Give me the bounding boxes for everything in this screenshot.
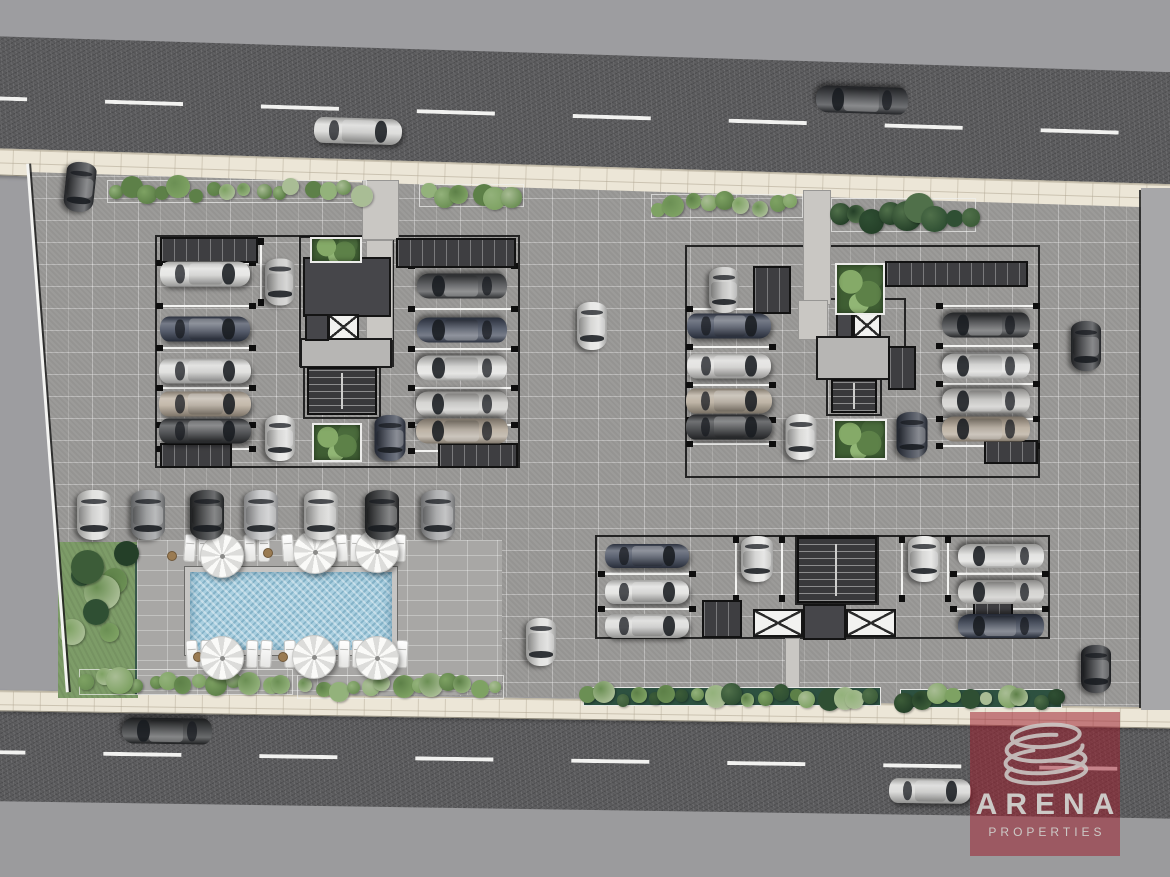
- car: [62, 161, 97, 214]
- brand-watermark: ARENA PROPERTIES: [970, 712, 1120, 856]
- brand-spiral-icon: [975, 718, 1115, 790]
- car-rear-window: [1005, 392, 1015, 411]
- car-rear-window: [379, 423, 402, 428]
- core-planter: [310, 237, 362, 263]
- car-rear-window: [1075, 330, 1097, 336]
- car-windshield: [193, 525, 221, 532]
- bush: [758, 691, 772, 705]
- bush: [238, 672, 261, 695]
- car-roof: [367, 506, 396, 525]
- car-roof: [968, 355, 1001, 377]
- car-rear-window: [81, 499, 106, 505]
- car: [160, 317, 250, 342]
- car-roof: [149, 720, 184, 743]
- car-rear-window: [619, 583, 628, 601]
- bush: [114, 541, 139, 566]
- bush: [298, 678, 312, 692]
- bush: [752, 201, 768, 217]
- car-roof: [714, 315, 746, 337]
- bush: [686, 193, 701, 208]
- car: [314, 117, 403, 146]
- bush: [961, 689, 980, 708]
- bush: [137, 185, 157, 205]
- car-windshield: [973, 546, 985, 566]
- car-rear-window: [369, 499, 394, 505]
- bush: [773, 684, 790, 701]
- storage-rooms: [888, 346, 916, 390]
- car: [577, 302, 607, 350]
- car-roof: [444, 420, 479, 442]
- car: [244, 490, 278, 540]
- car-rear-window: [175, 265, 185, 284]
- car-roof: [79, 506, 108, 525]
- staircase: [831, 379, 877, 413]
- car: [375, 415, 406, 461]
- bush: [1034, 695, 1049, 710]
- car-rear-window: [713, 275, 735, 280]
- car: [897, 412, 928, 458]
- parasol: [355, 636, 399, 680]
- side-table: [278, 652, 288, 662]
- car: [421, 490, 455, 540]
- car-roof: [267, 430, 293, 447]
- car-rear-window: [194, 499, 219, 505]
- car-rear-window: [790, 422, 813, 427]
- storage-rooms: [396, 238, 516, 268]
- car-roof: [711, 282, 737, 299]
- bush: [78, 674, 94, 690]
- car-windshield: [957, 356, 969, 377]
- bush: [166, 175, 189, 198]
- car: [417, 274, 507, 299]
- car-rear-window: [619, 617, 628, 635]
- car-windshield: [222, 319, 235, 340]
- car-windshield: [663, 582, 675, 602]
- car-windshield: [1084, 678, 1109, 685]
- car-windshield: [80, 525, 108, 532]
- car: [786, 414, 817, 460]
- car: [942, 417, 1030, 442]
- bush: [921, 206, 948, 233]
- car: [159, 359, 251, 384]
- bush: [715, 191, 734, 210]
- car-windshield: [223, 394, 236, 415]
- bush: [1010, 688, 1028, 706]
- car-roof: [189, 263, 223, 285]
- car: [526, 618, 556, 666]
- car-roof: [306, 506, 335, 525]
- car: [190, 490, 224, 540]
- bush: [894, 693, 913, 712]
- bush: [174, 676, 191, 693]
- car-windshield: [973, 582, 985, 602]
- staircase: [307, 367, 377, 415]
- bush: [593, 681, 615, 703]
- car: [160, 262, 250, 287]
- road-top-center-line: [0, 96, 1170, 139]
- service-shaft: [305, 314, 329, 341]
- car-roof: [528, 633, 554, 651]
- car-roof: [984, 546, 1017, 567]
- sun-lounger: [259, 640, 273, 669]
- elevator: [753, 609, 803, 637]
- car: [686, 389, 772, 414]
- car-rear-window: [175, 395, 185, 414]
- car: [417, 356, 507, 381]
- car-windshield: [432, 320, 445, 341]
- bush: [489, 681, 501, 693]
- car: [686, 415, 772, 440]
- car-roof: [444, 319, 478, 341]
- car-windshield: [1074, 356, 1099, 363]
- car: [816, 85, 909, 115]
- bush: [980, 692, 992, 704]
- car-windshield: [745, 417, 757, 438]
- car-rear-window: [187, 722, 197, 741]
- bush: [257, 184, 272, 199]
- core-planter: [835, 263, 885, 315]
- service-shaft: [803, 604, 846, 640]
- car-windshield: [957, 315, 969, 336]
- car-rear-window: [482, 277, 492, 296]
- bush: [1048, 689, 1065, 706]
- car-rear-window: [701, 392, 710, 411]
- bush: [329, 682, 348, 701]
- car-windshield: [580, 335, 605, 342]
- bush: [219, 184, 235, 200]
- car-rear-window: [1005, 316, 1015, 335]
- core-planter: [312, 423, 362, 462]
- car: [942, 313, 1030, 338]
- car: [709, 267, 739, 313]
- car-roof: [714, 390, 747, 412]
- car: [131, 490, 165, 540]
- bush: [962, 208, 980, 226]
- car-roof: [968, 390, 1001, 412]
- car-windshield: [957, 419, 969, 440]
- side-table: [263, 548, 273, 558]
- car-windshield: [745, 391, 757, 412]
- car: [958, 614, 1044, 638]
- car-roof: [246, 506, 275, 525]
- car-rear-window: [701, 317, 710, 336]
- car-roof: [133, 506, 162, 525]
- car-windshield: [663, 616, 675, 636]
- bush: [945, 688, 961, 704]
- car: [265, 259, 295, 306]
- car-windshield: [529, 651, 554, 658]
- elevator: [853, 313, 881, 338]
- bush: [449, 185, 468, 204]
- staircase: [797, 537, 877, 603]
- car-roof: [66, 177, 94, 199]
- car-windshield: [247, 525, 275, 532]
- car: [304, 490, 338, 540]
- car-windshield: [424, 525, 452, 532]
- parasol: [200, 636, 244, 680]
- bush: [501, 187, 521, 207]
- storage-rooms: [984, 440, 1038, 464]
- car-roof: [444, 275, 478, 297]
- car: [605, 544, 689, 568]
- outside-east: [1141, 188, 1170, 710]
- car-roof: [743, 551, 771, 568]
- car-windshield: [137, 720, 150, 742]
- car-roof: [632, 616, 664, 637]
- car: [77, 490, 111, 540]
- car-windshield: [432, 358, 445, 379]
- storage-rooms: [160, 443, 232, 468]
- car-roof: [188, 393, 223, 415]
- car: [416, 392, 508, 417]
- storage-rooms: [160, 237, 258, 263]
- bush: [71, 550, 104, 583]
- car-rear-window: [901, 420, 924, 425]
- bush: [798, 691, 815, 708]
- car-roof: [984, 582, 1017, 603]
- car-windshield: [134, 525, 162, 532]
- bush: [617, 694, 629, 706]
- car: [605, 614, 689, 638]
- car-roof: [632, 546, 664, 567]
- boundary-east: [1139, 190, 1141, 708]
- car: [417, 318, 507, 343]
- car-roof: [714, 416, 747, 438]
- car: [1071, 321, 1101, 371]
- car: [889, 778, 971, 804]
- car-windshield: [268, 291, 293, 298]
- parasol: [292, 635, 336, 679]
- car-rear-window: [1005, 420, 1015, 439]
- car: [958, 544, 1044, 568]
- car-windshield: [945, 781, 957, 802]
- car-rear-window: [903, 781, 912, 800]
- car-roof: [899, 427, 926, 444]
- bush: [721, 683, 742, 704]
- car-windshield: [222, 264, 235, 285]
- core-lobby: [300, 338, 392, 368]
- car-roof: [188, 360, 223, 382]
- bush: [657, 685, 675, 703]
- storage-rooms: [753, 266, 791, 314]
- car: [159, 392, 251, 417]
- car-rear-window: [329, 120, 339, 140]
- car-roof: [915, 780, 946, 802]
- car: [159, 419, 251, 444]
- car-rear-window: [701, 418, 710, 437]
- car-rear-window: [248, 499, 273, 505]
- car-windshield: [957, 391, 969, 412]
- car-roof: [788, 429, 815, 446]
- side-table: [167, 551, 177, 561]
- entrance-walkway: [798, 300, 828, 340]
- car-rear-window: [425, 499, 450, 505]
- car: [605, 580, 689, 604]
- car-rear-window: [135, 499, 160, 505]
- car-roof: [1073, 337, 1099, 356]
- entrance-walkway: [803, 190, 831, 305]
- car-roof: [192, 506, 221, 525]
- car-roof: [423, 506, 452, 525]
- storage-rooms: [702, 600, 742, 638]
- car-windshield: [432, 276, 445, 297]
- car-roof: [188, 420, 223, 442]
- car-roof: [267, 274, 293, 292]
- car-windshield: [973, 616, 985, 636]
- car-rear-window: [745, 544, 769, 549]
- car: [416, 419, 508, 444]
- bush: [320, 182, 337, 199]
- car-roof: [377, 430, 404, 447]
- bush: [741, 693, 754, 706]
- bush: [351, 185, 373, 207]
- car: [908, 536, 940, 582]
- car-roof: [910, 551, 938, 568]
- car: [1081, 645, 1111, 693]
- car-rear-window: [482, 359, 492, 378]
- bush: [675, 689, 688, 702]
- car: [958, 580, 1044, 604]
- car-windshield: [307, 525, 335, 532]
- car-rear-window: [269, 423, 291, 428]
- car-roof: [984, 616, 1017, 637]
- car-roof: [968, 418, 1001, 440]
- car-windshield: [663, 546, 675, 566]
- car-roof: [1083, 660, 1109, 678]
- car-rear-window: [1005, 357, 1015, 376]
- car-rear-window: [308, 499, 333, 505]
- car-windshield: [223, 421, 236, 442]
- car-roof: [968, 314, 1001, 336]
- sun-lounger: [245, 640, 258, 668]
- car-roof: [714, 355, 746, 377]
- core-planter: [833, 419, 887, 460]
- car-rear-window: [619, 547, 628, 565]
- car-windshield: [745, 356, 757, 377]
- car-rear-window: [175, 422, 185, 441]
- bush: [282, 178, 299, 195]
- core-lobby: [816, 336, 890, 380]
- car: [942, 389, 1030, 414]
- car-rear-window: [701, 357, 710, 376]
- car-rear-window: [482, 321, 492, 340]
- brand-name: ARENA: [968, 790, 1123, 820]
- storage-rooms: [438, 443, 518, 468]
- car: [942, 354, 1030, 379]
- bush: [471, 680, 489, 698]
- car: [687, 314, 771, 339]
- elevator: [328, 314, 359, 340]
- car-roof: [444, 393, 479, 415]
- car-roof: [843, 88, 879, 112]
- car-rear-window: [175, 320, 185, 339]
- car: [265, 415, 295, 461]
- service-shaft: [303, 257, 391, 317]
- car: [365, 490, 399, 540]
- car-windshield: [223, 361, 236, 382]
- car-roof: [189, 318, 223, 340]
- car-windshield: [368, 525, 396, 532]
- car: [122, 717, 212, 744]
- car-rear-window: [912, 544, 936, 549]
- car-windshield: [745, 316, 757, 337]
- car-roof: [579, 317, 605, 335]
- car-roof: [342, 119, 376, 142]
- brand-subtitle: PROPERTIES: [984, 826, 1105, 838]
- car: [687, 354, 771, 379]
- car-roof: [444, 357, 478, 379]
- parasol: [200, 534, 244, 578]
- elevator: [846, 609, 896, 637]
- storage-rooms: [885, 261, 1028, 287]
- bush: [631, 687, 647, 703]
- car: [741, 536, 773, 582]
- site-plan-render: ARENA PROPERTIES: [0, 0, 1170, 877]
- bush: [946, 210, 963, 227]
- service-shaft: [836, 313, 853, 338]
- car-roof: [632, 582, 664, 603]
- sun-lounger: [338, 640, 351, 668]
- car-rear-window: [175, 362, 185, 381]
